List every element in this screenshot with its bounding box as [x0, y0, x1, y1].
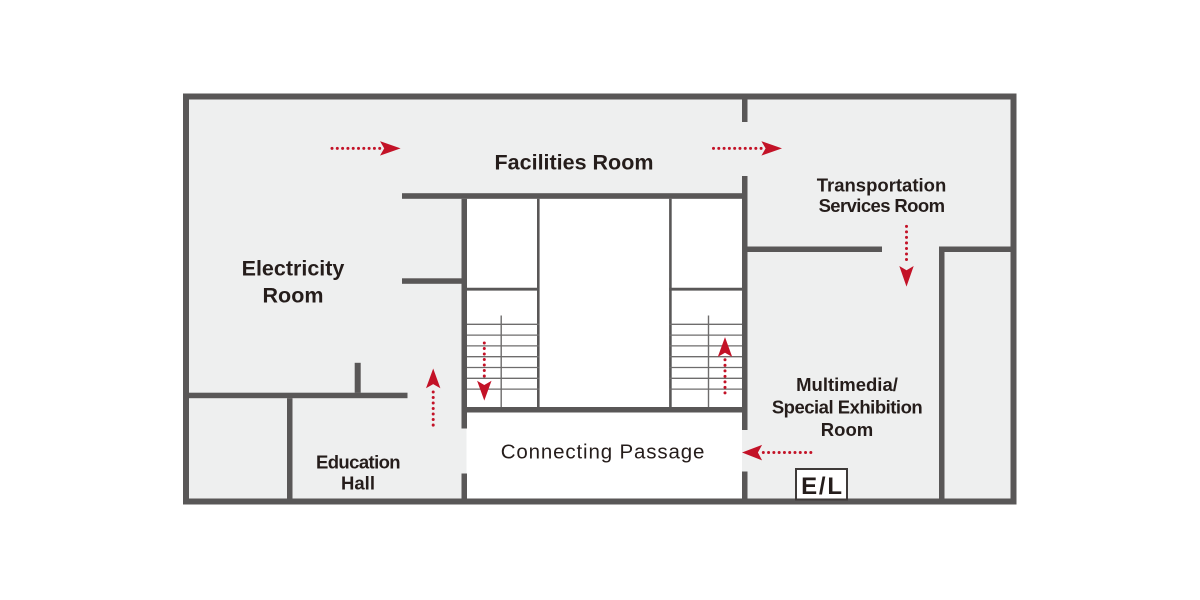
svg-text:Room: Room — [263, 283, 324, 307]
svg-text:Electricity: Electricity — [242, 257, 345, 281]
svg-text:Room: Room — [821, 419, 873, 440]
svg-text:Connecting Passage: Connecting Passage — [501, 441, 706, 464]
svg-text:Hall: Hall — [341, 473, 375, 494]
svg-text:Education: Education — [316, 452, 400, 473]
svg-text:Services Room: Services Room — [819, 195, 945, 216]
svg-text:Special Exhibition: Special Exhibition — [772, 397, 923, 418]
svg-text:Transportation: Transportation — [817, 174, 947, 195]
svg-text:Multimedia/: Multimedia/ — [796, 374, 898, 395]
svg-text:E/L: E/L — [801, 473, 844, 500]
svg-text:Facilities Room: Facilities Room — [495, 151, 654, 175]
